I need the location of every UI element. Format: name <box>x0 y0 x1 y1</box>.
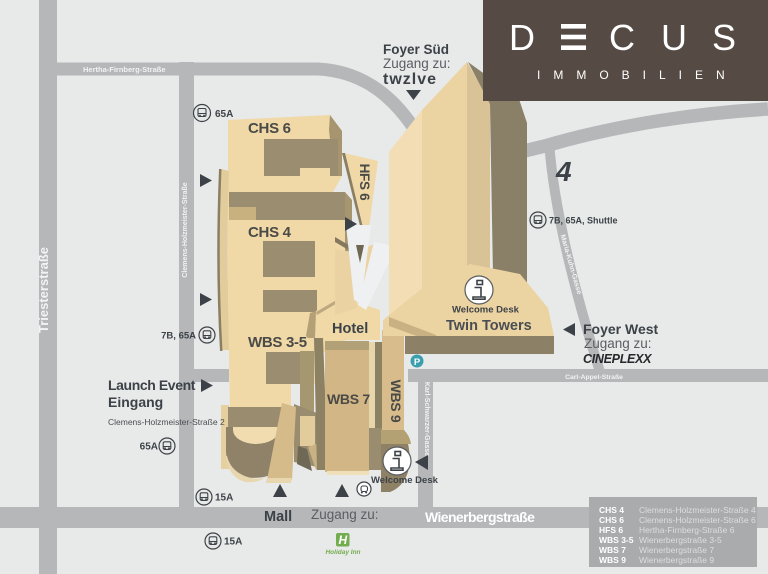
svg-text:WBS 7: WBS 7 <box>327 391 370 407</box>
svg-text:Welcome Desk: Welcome Desk <box>371 475 439 486</box>
svg-text:WBS 9: WBS 9 <box>388 380 404 423</box>
svg-text:Twin Towers: Twin Towers <box>446 318 532 334</box>
svg-text:Clemens-Holzmeister-Straße 4: Clemens-Holzmeister-Straße 4 <box>639 505 756 515</box>
svg-text:WBS 7: WBS 7 <box>599 545 626 555</box>
svg-text:CHS 4: CHS 4 <box>248 224 292 241</box>
svg-text:Wienerbergstraße 9: Wienerbergstraße 9 <box>639 555 714 565</box>
svg-text:65A: 65A <box>215 109 233 120</box>
svg-text:Wienerbergstraße 3-5: Wienerbergstraße 3-5 <box>639 535 722 545</box>
svg-text:Zugang zu:: Zugang zu: <box>311 507 379 522</box>
svg-text:Clemens-Holzmeister-Straße 6: Clemens-Holzmeister-Straße 6 <box>639 515 756 525</box>
svg-text:Mall: Mall <box>264 509 292 525</box>
svg-text:HFS 6: HFS 6 <box>599 525 623 535</box>
svg-text:Launch Event: Launch Event <box>108 377 196 393</box>
svg-text:Zugang zu:: Zugang zu: <box>383 56 451 71</box>
svg-text:15A: 15A <box>224 537 242 548</box>
svg-text:Zugang zu:: Zugang zu: <box>584 336 652 351</box>
svg-text:7B, 65A: 7B, 65A <box>161 331 196 342</box>
svg-text:Foyer West: Foyer West <box>583 321 659 337</box>
svg-text:H: H <box>338 533 347 547</box>
svg-text:Hertha-Firnberg-Straße 6: Hertha-Firnberg-Straße 6 <box>639 525 735 535</box>
svg-text:S: S <box>712 17 736 58</box>
svg-text:C: C <box>609 17 635 58</box>
svg-text:Wienerbergstraße 7: Wienerbergstraße 7 <box>639 545 714 555</box>
svg-text:WBS 3-5: WBS 3-5 <box>599 535 634 545</box>
svg-text:WBS 9: WBS 9 <box>599 555 626 565</box>
svg-text:CINEPLEXX: CINEPLEXX <box>583 352 652 366</box>
svg-text:Triesterstraße: Triesterstraße <box>36 247 51 333</box>
svg-text:CHS 6: CHS 6 <box>599 515 624 525</box>
svg-text:Karl-Schwarzer-Gasse: Karl-Schwarzer-Gasse <box>423 382 430 456</box>
svg-text:U: U <box>661 17 687 58</box>
svg-text:Foyer Süd: Foyer Süd <box>383 42 449 57</box>
svg-text:Clemens-Holzmeister-Straße 2: Clemens-Holzmeister-Straße 2 <box>108 417 225 427</box>
svg-text:Eingang: Eingang <box>108 394 163 410</box>
svg-text:Welcome Desk: Welcome Desk <box>452 305 520 316</box>
svg-text:P: P <box>414 357 421 368</box>
svg-text:65A: 65A <box>140 442 158 453</box>
svg-text:twzlve: twzlve <box>383 71 437 88</box>
svg-text:Wienerbergstraße: Wienerbergstraße <box>425 509 535 525</box>
svg-text:Carl-Appel-Straße: Carl-Appel-Straße <box>565 374 623 381</box>
svg-text:7B, 65A, Shuttle: 7B, 65A, Shuttle <box>549 216 618 226</box>
svg-text:Hertha-Firnberg-Straße: Hertha-Firnberg-Straße <box>83 65 166 74</box>
svg-text:WBS 3-5: WBS 3-5 <box>248 334 307 351</box>
svg-text:Clemens-Holzmeister-Straße: Clemens-Holzmeister-Straße <box>182 182 189 277</box>
svg-text:HFS 6: HFS 6 <box>357 164 372 202</box>
svg-text:Hotel: Hotel <box>332 321 368 337</box>
svg-text:4: 4 <box>555 156 572 187</box>
svg-text:15A: 15A <box>215 493 233 504</box>
svg-text:D: D <box>509 17 535 58</box>
svg-text:CHS 6: CHS 6 <box>248 120 291 137</box>
svg-text:CHS 4: CHS 4 <box>599 505 624 515</box>
svg-text:Holiday Inn: Holiday Inn <box>325 549 360 556</box>
svg-text:IMMOBILIEN: IMMOBILIEN <box>537 68 738 82</box>
